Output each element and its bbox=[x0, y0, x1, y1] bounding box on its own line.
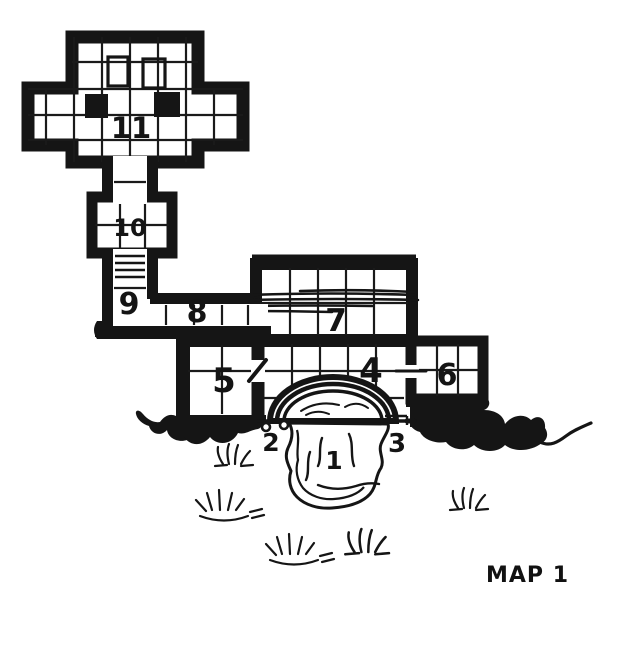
room-label-3: 3 bbox=[388, 429, 406, 459]
grass-tuft-icon bbox=[196, 490, 264, 521]
room-label-10: 10 bbox=[113, 214, 146, 242]
pillar-left bbox=[85, 94, 108, 118]
dungeon-map-page: 11 10 9 8 7 5 4 6 3 2 1 MAP 1 bbox=[0, 0, 633, 662]
room-label-4: 4 bbox=[359, 351, 383, 391]
room-label-11: 11 bbox=[111, 111, 151, 145]
room-label-1: 1 bbox=[325, 446, 342, 475]
hillside-right-tail bbox=[540, 423, 591, 444]
grass-tuft-icon bbox=[450, 488, 488, 510]
corridor-11-10 bbox=[108, 156, 153, 204]
room-label-5: 5 bbox=[212, 361, 236, 401]
grass-tuft-icon bbox=[266, 534, 334, 565]
room-label-7: 7 bbox=[325, 303, 347, 339]
pillar-right bbox=[154, 92, 180, 117]
room-label-2: 2 bbox=[262, 428, 279, 457]
room-label-9: 9 bbox=[119, 287, 140, 322]
grass-tuft-icon bbox=[345, 529, 389, 554]
room-label-8: 8 bbox=[187, 295, 208, 330]
room-11 bbox=[20, 30, 250, 168]
door-5-4 bbox=[249, 360, 266, 382]
room-label-6: 6 bbox=[437, 358, 458, 393]
entrance-pivot-right bbox=[280, 421, 288, 429]
map-title: MAP 1 bbox=[486, 563, 569, 588]
dungeon-map-svg: 11 10 9 8 7 5 4 6 3 2 1 MAP 1 bbox=[0, 0, 633, 662]
grass-tuft-icon bbox=[215, 444, 253, 466]
